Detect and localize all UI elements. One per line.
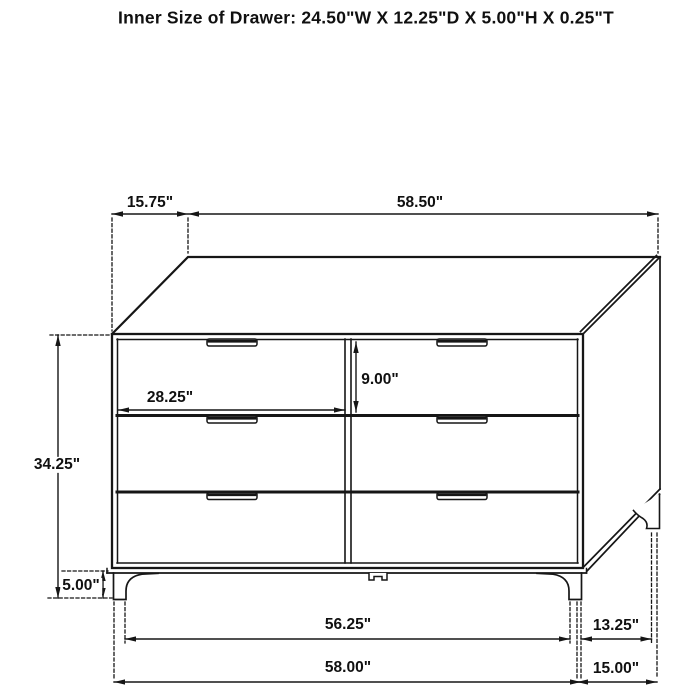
- center-foot: [369, 573, 387, 580]
- front-left-leg: [114, 573, 159, 600]
- dim-label-drawer-width: 28.25": [145, 390, 195, 406]
- dim-label-overall-depth: 15.00": [591, 661, 641, 677]
- dim-label-overall-height: 34.25": [32, 457, 82, 473]
- dim-label-top-depth: 15.75": [125, 195, 175, 211]
- drawer-handle: [207, 339, 257, 346]
- drawing-title: Inner Size of Drawer: 24.50"W X 12.25"D …: [118, 8, 614, 29]
- drawer-handle: [207, 416, 257, 423]
- dimension-drawing-page: Inner Size of Drawer: 24.50"W X 12.25"D …: [0, 0, 700, 700]
- dim-label-drawer-height: 9.00": [359, 372, 401, 388]
- drawer-handle: [437, 493, 487, 500]
- dim-label-top-width: 58.50": [395, 195, 445, 211]
- dim-label-overall-width: 58.00": [323, 660, 373, 676]
- dresser-line-drawing: [0, 0, 700, 700]
- drawer-handle: [207, 493, 257, 500]
- back-right-leg: [634, 494, 660, 529]
- dresser-front-face: [107, 334, 587, 573]
- dim-label-side-leg-span: 13.25": [591, 618, 641, 634]
- front-right-leg: [537, 573, 582, 600]
- drawer-handle: [437, 416, 487, 423]
- dresser-top-face: [112, 256, 660, 335]
- dim-label-front-leg-span: 56.25": [323, 617, 373, 633]
- dim-label-leg-height: 5.00": [60, 578, 102, 594]
- drawer-handle: [437, 339, 487, 346]
